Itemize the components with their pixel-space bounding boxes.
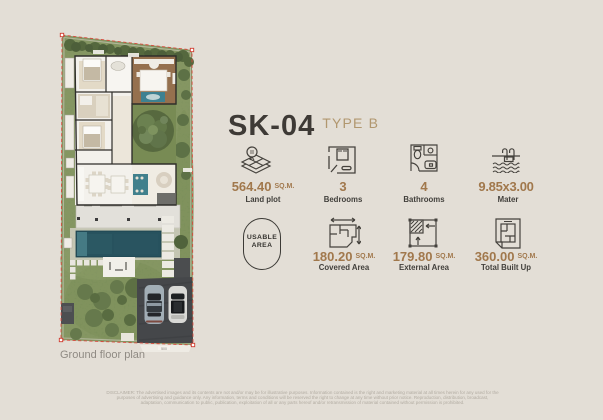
svg-text:500: 500 — [161, 347, 167, 351]
